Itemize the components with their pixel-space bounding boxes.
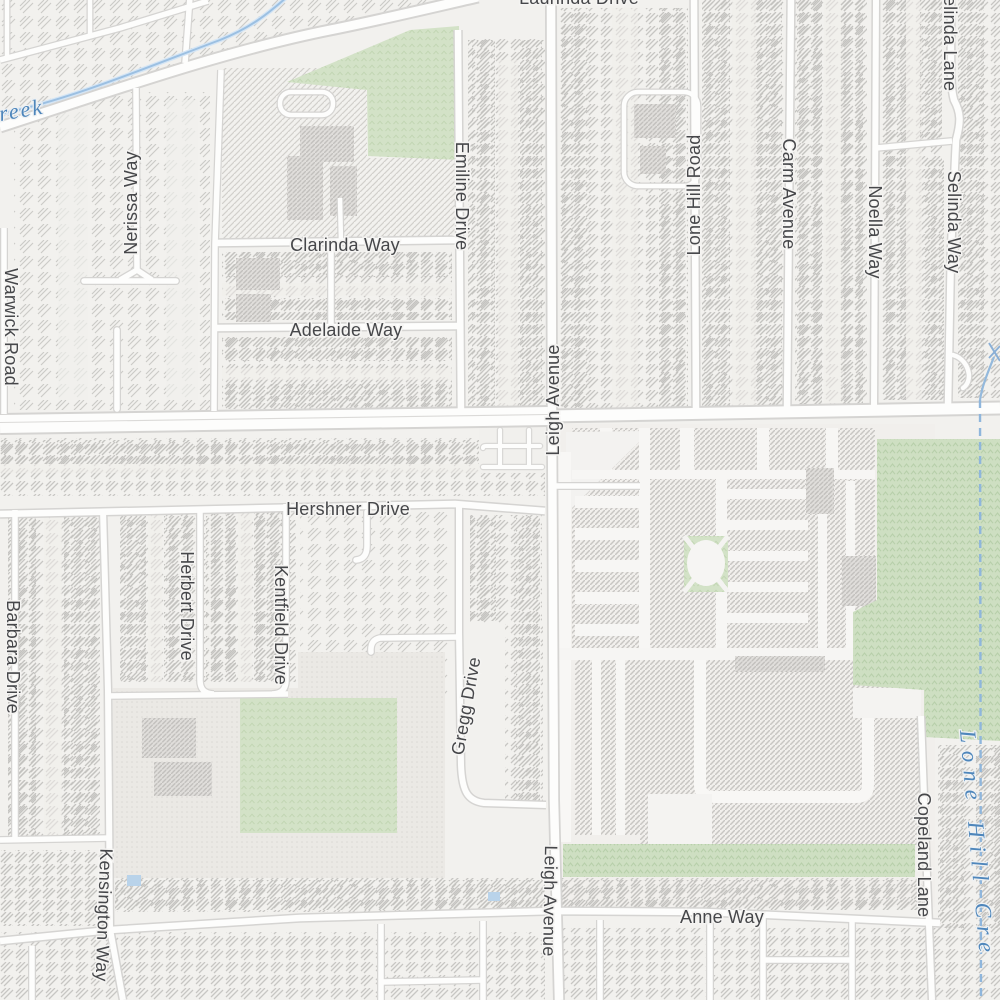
svg-text:Carm Avenue: Carm Avenue [779,139,799,250]
svg-text:Melinda Lane: Melinda Lane [940,0,960,91]
svg-text:Clarinda Way: Clarinda Way [290,235,400,255]
svg-text:Selinda Way: Selinda Way [944,171,964,274]
svg-text:Leigh Avenue: Leigh Avenue [539,845,561,957]
svg-text:Copeland Lane: Copeland Lane [914,793,934,918]
svg-text:Herbert Drive: Herbert Drive [177,551,197,661]
svg-text:Barbara Drive: Barbara Drive [3,600,23,714]
svg-text:Kentfield Drive: Kentfield Drive [271,565,291,685]
svg-text:Leigh Avenue: Leigh Avenue [543,344,563,455]
svg-text:Hershner Drive: Hershner Drive [286,499,410,519]
svg-text:Warwick Road: Warwick Road [1,268,21,386]
svg-text:Lone Hill Road: Lone Hill Road [684,135,704,256]
svg-text:Emiline Drive: Emiline Drive [452,142,472,251]
svg-text:Noella Way: Noella Way [865,185,885,278]
svg-text:Anne Way: Anne Way [680,907,764,927]
svg-text:Nerissa Way: Nerissa Way [121,151,141,255]
svg-text:Adelaide Way: Adelaide Way [290,320,403,340]
svg-text:Laurinda Drive: Laurinda Drive [519,0,639,8]
